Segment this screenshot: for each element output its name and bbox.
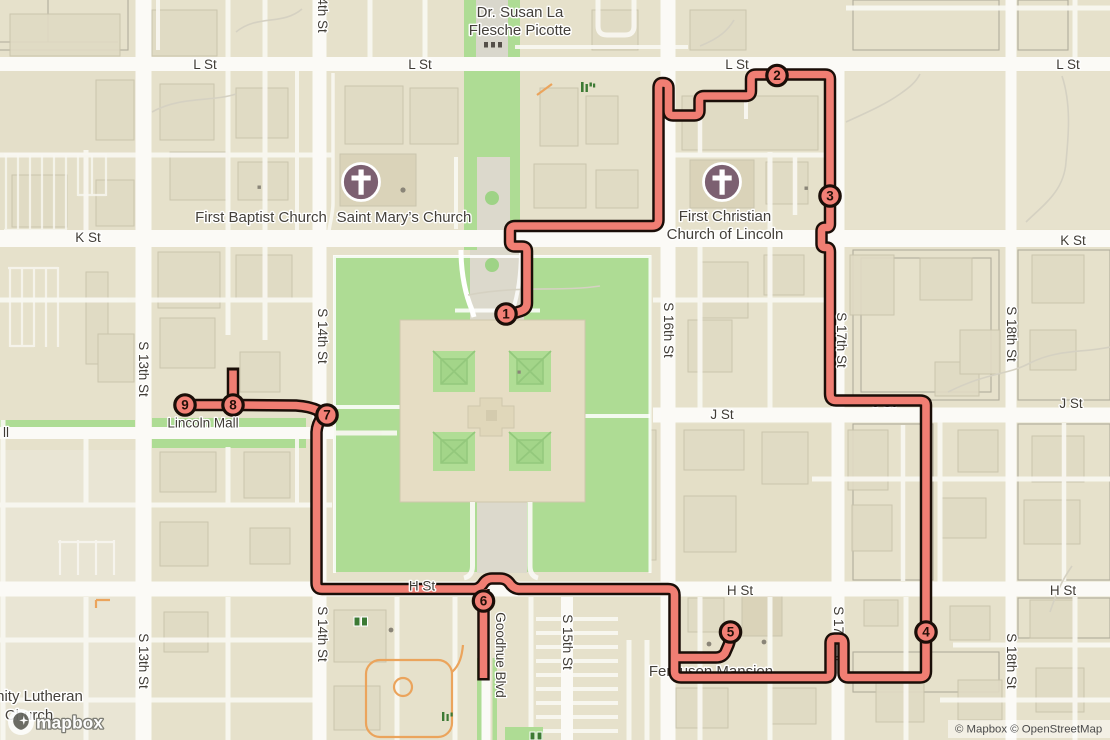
svg-text:S 16th St: S 16th St [661, 302, 676, 358]
svg-text:© Mapbox © OpenStreetMap: © Mapbox © OpenStreetMap [955, 724, 1102, 736]
svg-text:S 17th St: S 17th St [834, 312, 849, 368]
svg-text:8: 8 [229, 398, 237, 413]
svg-text:Goodhue Blvd: Goodhue Blvd [493, 612, 508, 698]
svg-text:Flesche Picotte: Flesche Picotte [469, 22, 572, 39]
svg-text:Church of Lincoln: Church of Lincoln [667, 226, 784, 243]
svg-text:First Baptist Church: First Baptist Church [195, 209, 327, 226]
svg-text:L St: L St [193, 57, 217, 72]
svg-text:K St: K St [1060, 233, 1086, 248]
svg-text:H St: H St [409, 579, 436, 594]
svg-text:7: 7 [323, 408, 331, 423]
svg-text:H St: H St [1050, 583, 1077, 598]
svg-text:1: 1 [502, 307, 510, 322]
svg-text:L St: L St [1056, 57, 1080, 72]
svg-text:Saint Mary’s Church: Saint Mary’s Church [337, 209, 472, 226]
svg-text:First Christian: First Christian [679, 208, 772, 225]
svg-text:S 14th St: S 14th St [315, 0, 330, 33]
svg-text:5: 5 [727, 625, 735, 640]
svg-text:S 18th St: S 18th St [1004, 633, 1019, 689]
svg-text:H St: H St [727, 583, 754, 598]
svg-text:4: 4 [922, 625, 930, 640]
svg-text:3: 3 [826, 189, 834, 204]
svg-text:Dr. Susan La: Dr. Susan La [477, 4, 564, 21]
svg-text:L St: L St [725, 57, 749, 72]
svg-text:6: 6 [480, 594, 488, 609]
svg-text:S 13th St: S 13th St [136, 633, 151, 689]
svg-text:J St: J St [710, 407, 734, 422]
svg-text:ll: ll [3, 425, 9, 440]
svg-text:Trinity Lutheran: Trinity Lutheran [0, 688, 83, 705]
svg-text:mapbox: mapbox [36, 713, 103, 733]
svg-text:S 18th St: S 18th St [1004, 306, 1019, 362]
svg-text:9: 9 [181, 398, 189, 413]
svg-text:S 14th St: S 14th St [315, 606, 330, 662]
svg-text:K St: K St [75, 230, 101, 245]
svg-text:S 14th St: S 14th St [315, 308, 330, 364]
svg-text:L St: L St [408, 57, 432, 72]
svg-text:J St: J St [1059, 396, 1083, 411]
svg-text:S 15th St: S 15th St [560, 614, 575, 670]
svg-text:2: 2 [773, 68, 781, 83]
svg-text:S 13th St: S 13th St [136, 341, 151, 397]
svg-text:Lincoln Mall: Lincoln Mall [167, 416, 238, 431]
